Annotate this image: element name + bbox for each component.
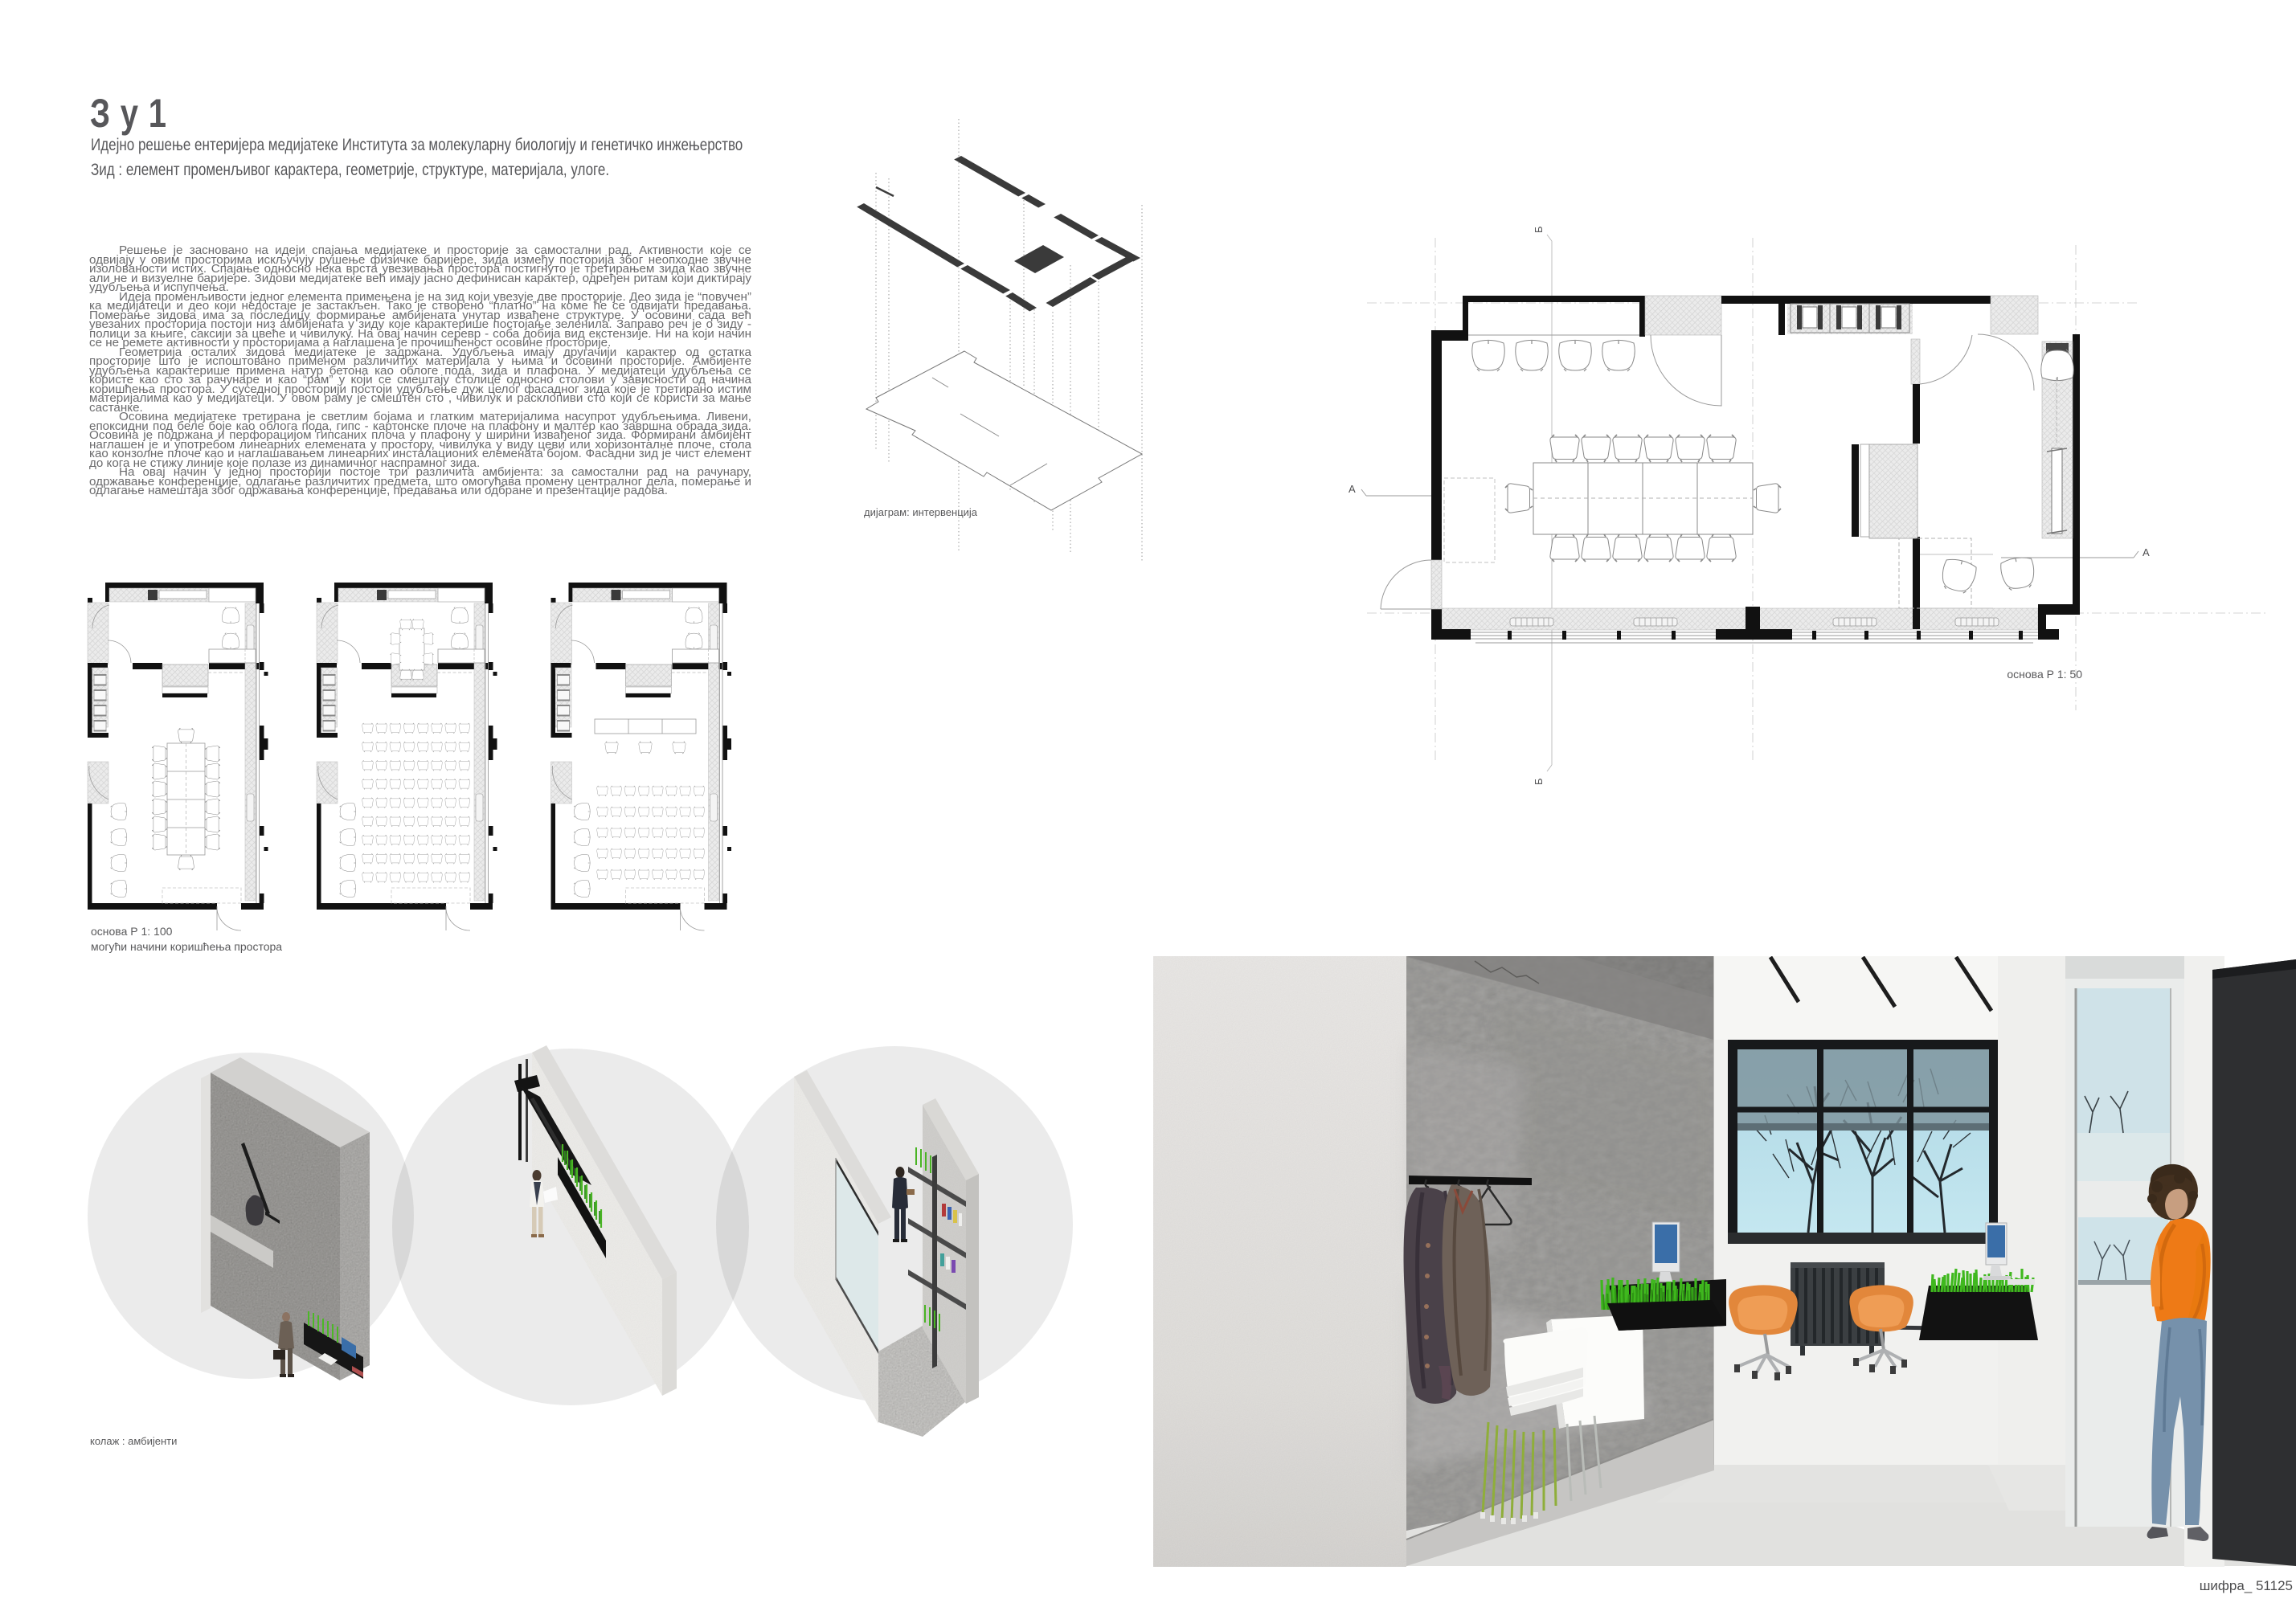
svg-text:Б: Б xyxy=(1533,778,1545,785)
svg-text:А: А xyxy=(2143,546,2150,558)
svg-text:Б: Б xyxy=(1533,226,1545,233)
svg-text:А: А xyxy=(1349,483,1356,495)
